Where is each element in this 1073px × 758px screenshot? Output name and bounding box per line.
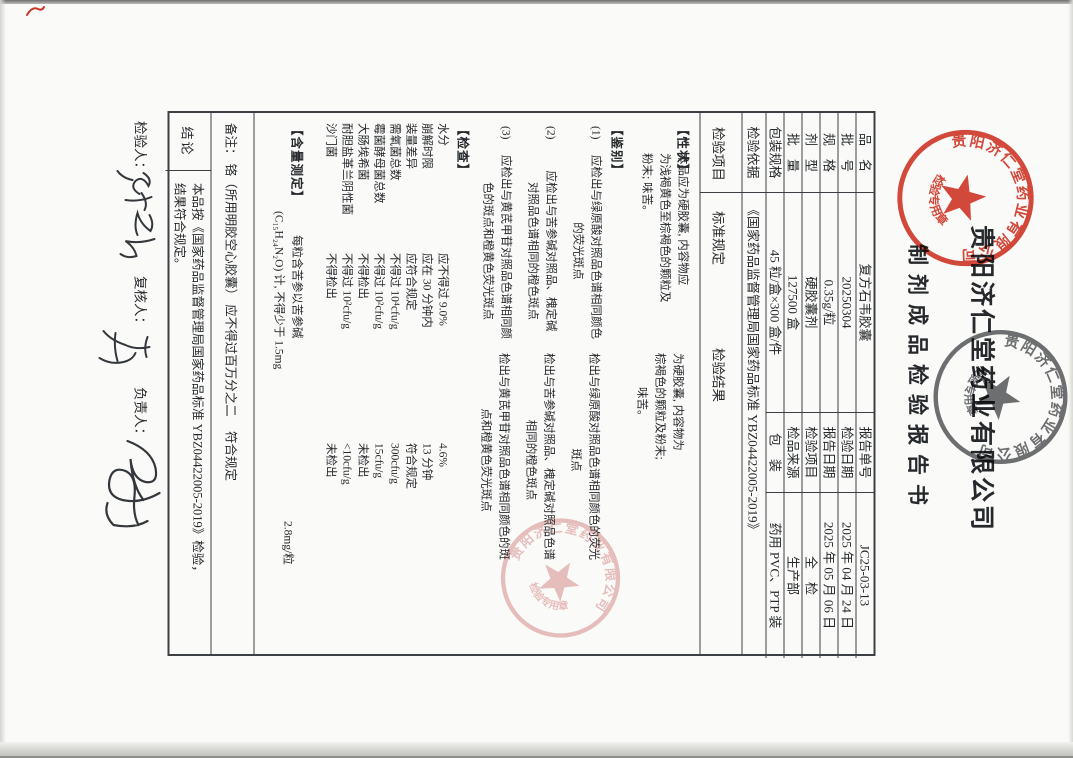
field-label: 剂 型 [801,113,819,193]
scan-edge-top [0,0,1073,4]
test-result: 15cfu/g [369,443,387,478]
product-name-value: 复方石韦胶囊 [855,193,873,413]
result-line: 检出与黄芪甲苷对照品色谱相同颜色的斑 [494,353,512,567]
reviewer-label: 复核人： [131,276,151,330]
supervisor-signature [97,433,169,551]
report-title: 制剂成品检验报告书 [903,0,933,758]
item-number: (3) [496,126,514,139]
standard-line: 粉末; 味苦。 [637,153,655,303]
identification-standard: 应检出与黄芪甲苷对照品色谱相同颜 色的斑点和橙黄色荧光斑点 [478,155,514,347]
field-label: 规 格 [819,113,837,193]
standard-line: 为浅褐黄色至棕褐色的颗粒及 [655,153,673,303]
conclusion-row: 结论 本品按《国家药品监督管理局国家药品标准 YBZ04422005-2019》… [165,113,210,654]
conclusion-text: 本品按《国家药品监督管理局国家药品标准 YBZ04422005-2019》检验，… [165,171,210,658]
test-name: 霉菌酵母菌总数 [369,123,387,204]
test-result: 未检出 [353,443,371,478]
result-line: 棕褐色的颗粒及粉末; [650,353,668,460]
test-name: 大肠埃希菌 [353,123,371,181]
table-row: 批 号 20250304 检验日期 2025 年 04 月 24 日 [837,113,855,654]
result-line: 检出与绿原酸对照品色谱相同颜色的荧光 [584,353,602,567]
test-result: 未检出 [321,443,339,478]
scanned-page: 贵阳济仁堂药业有限公司 制剂成品检验报告书 贵阳济仁堂药业有限公司 检验专用章 … [0,0,1073,758]
field-label: 批 号 [837,113,855,193]
identification-result: 检出与黄芪甲苷对照品色谱相同颜色的斑 点和橙黄色荧光斑点 [476,353,512,567]
test-result: <10cfu/g [337,443,355,485]
test-standard: 不得检出 [321,253,339,299]
standard-line: 的荧光斑点 [568,155,586,347]
test-result: 4.6% [433,443,451,467]
field-label: 批 量 [783,113,801,193]
packaging-value: 药用 PVC、PTP 装 [765,493,783,658]
remark-result: 符合规定 [222,431,241,481]
svg-text:检验专用章: 检验专用章 [924,171,951,229]
black-company-seal: 贵阳济仁堂药业有限公司 检验专用章 [914,311,1073,483]
test-name: 装量差异 [401,123,419,169]
test-name: 需氧菌总数 [385,123,403,181]
sample-source-value: 生产部 [783,493,801,658]
result-line: 点和橙黄色荧光斑点 [476,353,494,567]
test-name: 沙门菌 [321,123,339,158]
item-number: (2) [541,126,559,139]
standard-line: 色的斑点和橙黄色荧光斑点 [478,155,496,347]
test-standard: 不得检出 [353,253,371,299]
field-label: 报告日期 [819,413,837,493]
report-date-value: 2025 年 05 月 06 日 [819,493,837,658]
standard-line: 应检出与苦参碱对照品、槐定碱 [541,155,559,347]
inspector-signature [111,159,163,267]
identification-standard: 应检出与绿原酸对照品色谱相同颜色 的荧光斑点 [568,155,604,347]
conclusion-line: 结果符合规定。 [170,183,188,658]
standard-line: 应检出与绿原酸对照品色谱相同颜色 [586,155,604,347]
table-row: 包装规格 45 粒/盒×300 盒/件 包 装 药用 PVC、PTP 装 [765,113,783,654]
result-line: 检出与苦参碱对照品、槐定碱对照品色谱 [539,353,557,567]
seal-banner-text: 检验专用章 [924,171,951,229]
table-row: 剂 型 硬胶囊剂 检验项目 全 检 [801,113,819,654]
batch-qty-value: 127500 盒 [783,193,801,413]
seal-star-icon [940,173,987,222]
conclusion-line: 本品按《国家药品监督管理局国家药品标准 YBZ04422005-2019》检验， [188,183,206,658]
svg-text:检验专用章: 检验专用章 [956,361,992,421]
result-line: 为硬胶囊, 内容物为 [668,353,686,460]
result-line: 味苦。 [632,353,650,460]
batch-no-value: 20250304 [837,193,855,413]
result-line: 斑点 [566,353,584,567]
assay-result: 2.8mg/粒 [278,521,296,565]
pack-spec-value: 45 粒/盒×300 盒/件 [765,193,783,413]
table-row: 批 量 127500 盒 检品来源 生产部 [783,113,801,654]
test-result: 13 分钟 [417,443,435,480]
red-corner-mark [24,4,46,18]
dosage-form-value: 硬胶囊剂 [801,193,819,413]
field-label: 检品来源 [783,413,801,493]
report-no-value: JC25-03-13 [855,493,873,658]
results-body: 【性状】 本品应为硬胶囊, 内容物应 为浅褐黄色至棕褐色的颗粒及 粉末; 味苦。… [253,113,699,654]
test-standard: 不得过 10²cfu/g [337,253,355,329]
scan-edge-left [0,0,6,758]
result-line: 相同的橙色斑点 [521,353,539,567]
section-label-assay: 【含量测定】 [287,123,305,204]
test-standard: 应在 30 分钟内 [417,253,435,328]
assay-standard-line: (C₁₅H₂₄N₂O) 计, 不得少于 1.5mg [269,211,287,369]
signature-row: 检验人： 复核人： 负责人： [87,111,157,671]
field-label: 报告单号 [855,413,873,493]
test-standard: 应符合规定 [401,253,419,311]
conclusion-label: 结论 [165,113,210,171]
standard-line: 本品应为硬胶囊, 内容物应 [673,153,691,303]
test-name: 水分 [433,123,451,146]
test-result: 符合规定 [401,443,419,489]
identification-result: 检出与苦参碱对照品、槐定碱对照品色谱 相同的橙色斑点 [521,353,557,567]
col-result-header: 检验结果 [709,348,729,402]
identification-result: 检出与绿原酸对照品色谱相同颜色的荧光 斑点 [566,353,602,567]
red-inspection-seal: 贵阳济仁堂药业有限公司 检验专用章 [888,121,1042,275]
reviewer-signature [93,323,155,375]
field-label: 包 装 [765,413,783,493]
col-item-header: 检验项目 [709,127,729,181]
section-label-identification: 【鉴别】 [607,123,625,177]
field-label: 检验日期 [837,413,855,493]
section-label-tests: 【检查】 [453,123,471,177]
report-table: 品 名 复方石韦胶囊 报告单号 JC25-03-13 批 号 20250304 … [167,111,875,656]
character-standard: 本品应为硬胶囊, 内容物应 为浅褐黄色至棕褐色的颗粒及 粉末; 味苦。 [637,153,691,303]
basis-label: 检验依据 [741,113,765,193]
field-label: 检验项目 [801,413,819,493]
table-row: 规 格 0.35g/粒 报告日期 2025 年 05 月 06 日 [819,113,837,654]
inspect-date-value: 2025 年 04 月 24 日 [837,493,855,658]
table-row: 品 名 复方石韦胶囊 报告单号 JC25-03-13 [855,113,873,654]
remark-row: 备注： 铬（所用明胶空心胶囊） 应不得过百万分之二 符合规定 [210,113,253,654]
item-number: (1) [586,126,604,139]
column-divider [700,192,741,193]
field-label: 品 名 [855,113,873,193]
test-standard: 应不得过 9.0% [433,253,451,326]
test-standard: 不得过 10²cfu/g [369,253,387,329]
test-result: 300cfu/g [385,443,403,484]
test-standard: 不得过 10⁴cfu/g [385,253,403,330]
scan-edge-bottom [0,742,1073,758]
scope-value: 全 检 [801,493,819,658]
remark-text: 备注： 铬（所用明胶空心胶囊） 应不得过百万分之二 [222,123,241,417]
field-label: 包装规格 [765,113,783,193]
report-sheet: 贵阳济仁堂药业有限公司 制剂成品检验报告书 贵阳济仁堂药业有限公司 检验专用章 … [0,0,1073,758]
seal-banner-text: 检验专用章 [956,361,992,421]
basis-row: 检验依据 《国家药品监督管理局国家药品标准 YBZ04422005-2019》 [741,113,765,654]
character-result: 为硬胶囊, 内容物为 棕褐色的颗粒及粉末; 味苦。 [632,353,686,460]
test-name: 耐胆盐革兰阴性菌 [337,123,355,215]
column-header-row: 检验项目 标准规定 检验结果 [699,113,741,654]
basis-value: 《国家药品监督管理局国家药品标准 YBZ04422005-2019》 [741,193,765,654]
identification-standard: 应检出与苦参碱对照品、槐定碱 对照品色谱相同的橙色斑点 [523,155,559,347]
assay-standard-line: 每粒含苦参以苦参碱 [287,235,305,339]
test-name: 崩解时限 [417,123,435,169]
standard-line: 对照品色谱相同的橙色斑点 [523,155,541,347]
standard-line: 应检出与黄芪甲苷对照品色谱相同颜 [496,155,514,347]
scan-edge-right [1068,0,1073,758]
spec-value: 0.35g/粒 [819,193,837,413]
col-standard-header: 标准规定 [709,211,729,265]
